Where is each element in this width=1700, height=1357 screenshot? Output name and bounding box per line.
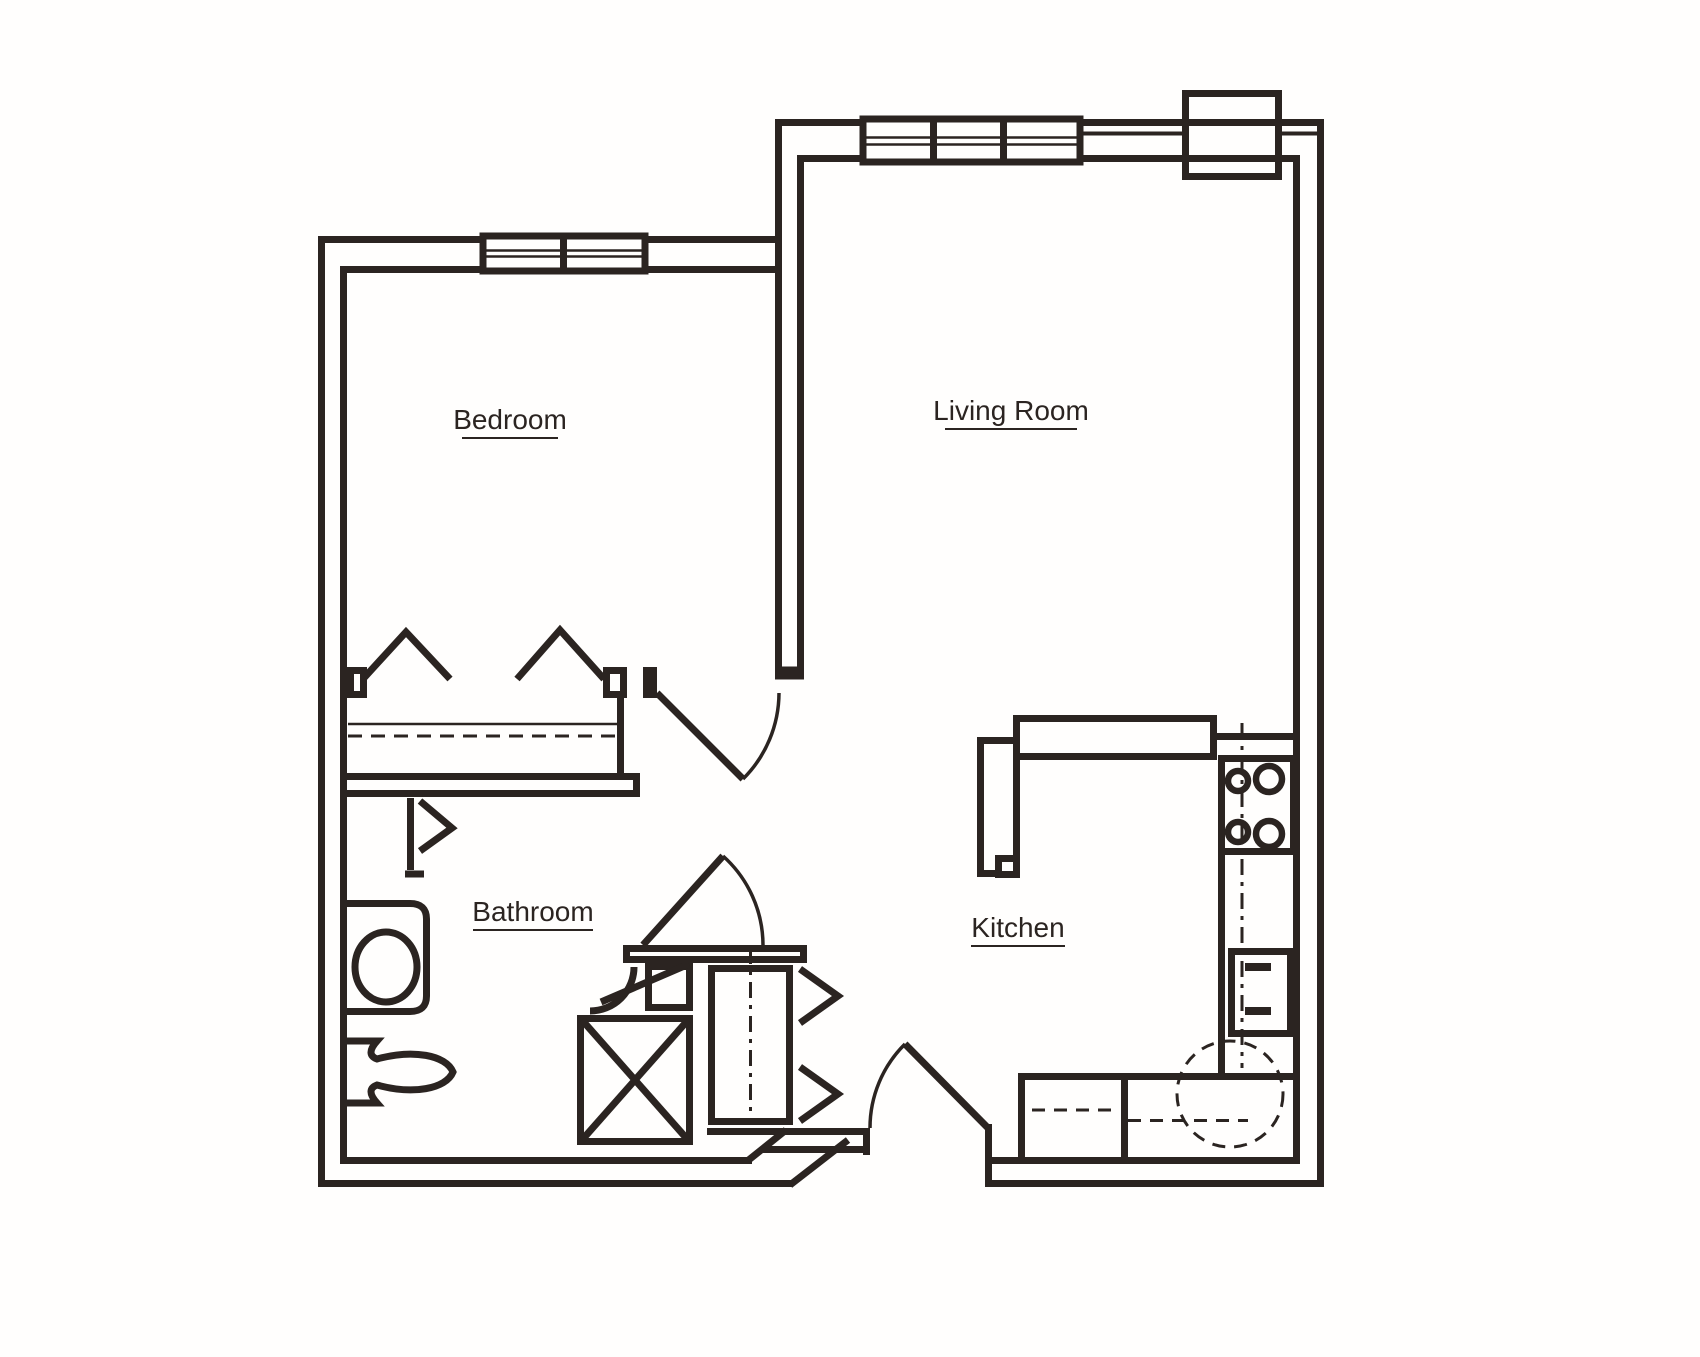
bedroom-door-jamb-b (647, 671, 654, 695)
peninsula-end-panel (981, 741, 1017, 874)
corner-basin (590, 964, 690, 1011)
bathroom-fixtures (347, 798, 838, 1142)
bedroom-window (483, 236, 645, 271)
bathroom-label: Bathroom (472, 896, 593, 927)
kitchen-peninsula-counter (1017, 719, 1214, 757)
entry-door-leaf (905, 1044, 988, 1128)
water-heater-closet (712, 948, 790, 1122)
chimney-chase (1186, 94, 1279, 177)
bedroom-door-jamb-a (607, 671, 624, 695)
entry-door (870, 1044, 988, 1128)
closet-bifold-door-left (363, 632, 450, 679)
floor-plan-drawing: Bedroom Living Room Bathroom Kitchen (0, 0, 1700, 1357)
toilet (347, 1041, 453, 1103)
bathroom-door-leaf (643, 856, 723, 945)
bedroom-door-swing-arc (743, 693, 779, 779)
linen-closet (405, 798, 452, 874)
floor-plan-page: Bedroom Living Room Bathroom Kitchen (0, 0, 1700, 1357)
closet-bifold-door-right (517, 630, 604, 679)
entry-door-swing-arc (870, 1044, 905, 1128)
bathroom-door-swing-arc (723, 856, 763, 945)
closet-jamb-left (351, 671, 364, 695)
bedroom-closet (343, 630, 654, 797)
living-room-label: Living Room (933, 395, 1089, 426)
kitchen-label: Kitchen (971, 912, 1064, 943)
living-room-window (863, 119, 1080, 162)
bedroom-door-leaf (657, 693, 743, 779)
bedroom-door (657, 693, 779, 779)
bedroom-label: Bedroom (453, 404, 567, 435)
peninsula-end-foot (999, 859, 1017, 875)
linen-closet-bifold-door (420, 801, 452, 851)
kitchen-sink (1232, 952, 1291, 1034)
exterior-walls (318, 119, 1324, 1187)
range-cooktop (1222, 759, 1294, 852)
bathroom-door (643, 856, 763, 945)
shower (581, 1019, 690, 1142)
kitchen-clearance-circle (1177, 1041, 1283, 1147)
hall-closet-bifold-doors (800, 969, 838, 1121)
hall-header-wall (627, 949, 804, 960)
